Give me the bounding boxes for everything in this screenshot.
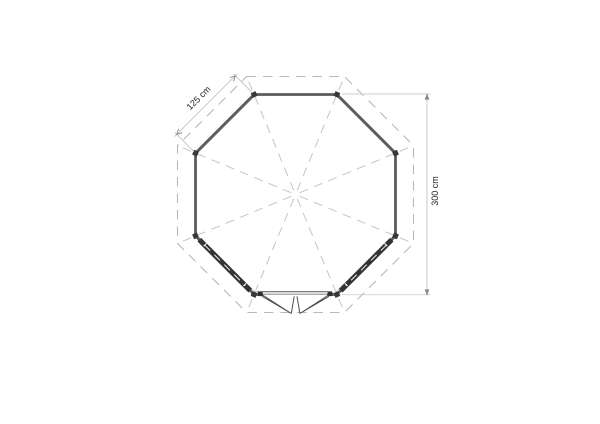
svg-text:300 cm: 300 cm: [430, 176, 440, 206]
svg-text:125 cm: 125 cm: [185, 84, 213, 112]
